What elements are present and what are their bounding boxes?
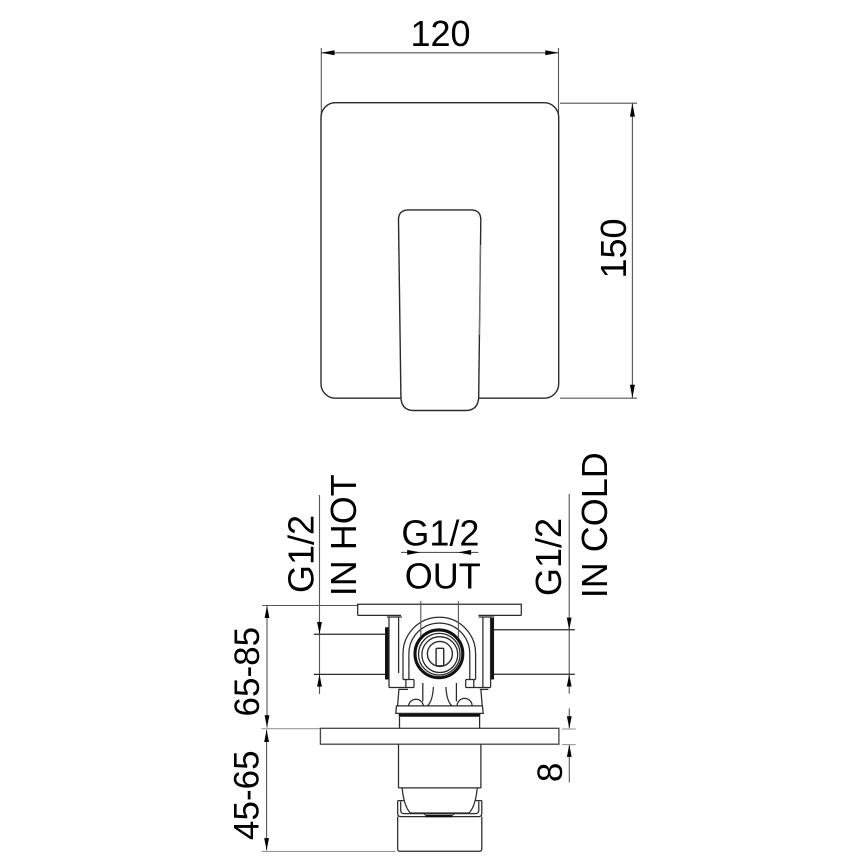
svg-text:OUT: OUT xyxy=(405,556,481,597)
svg-text:65-85: 65-85 xyxy=(228,627,267,717)
svg-text:45-65: 45-65 xyxy=(228,750,267,840)
svg-text:G1/2: G1/2 xyxy=(401,513,479,554)
svg-text:IN HOT: IN HOT xyxy=(323,474,364,596)
svg-text:8: 8 xyxy=(531,763,570,782)
svg-text:G1/2: G1/2 xyxy=(280,515,321,593)
svg-text:120: 120 xyxy=(410,13,470,54)
svg-text:G1/2: G1/2 xyxy=(528,518,569,596)
svg-text:150: 150 xyxy=(593,218,634,278)
svg-text:IN COLD: IN COLD xyxy=(574,452,615,598)
